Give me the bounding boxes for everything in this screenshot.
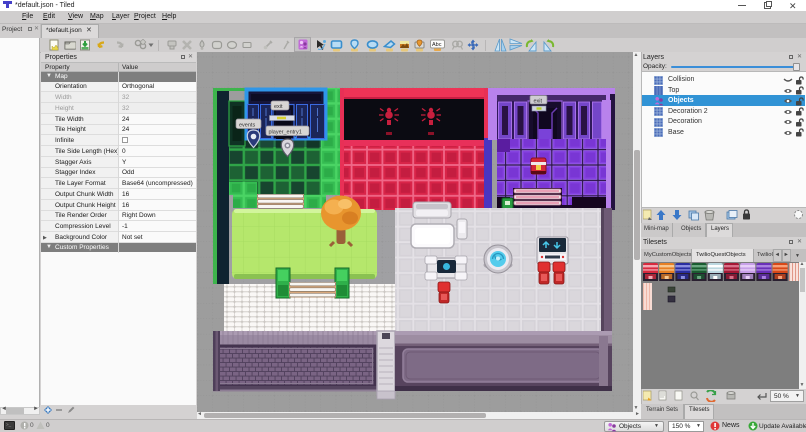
svg-text:Abc: Abc: [432, 42, 442, 48]
svg-text:exit: exit: [534, 99, 543, 105]
svg-text:exit: exit: [274, 104, 283, 110]
svg-text:player_entry1: player_entry1: [269, 130, 302, 136]
svg-text:events: events: [239, 123, 255, 129]
